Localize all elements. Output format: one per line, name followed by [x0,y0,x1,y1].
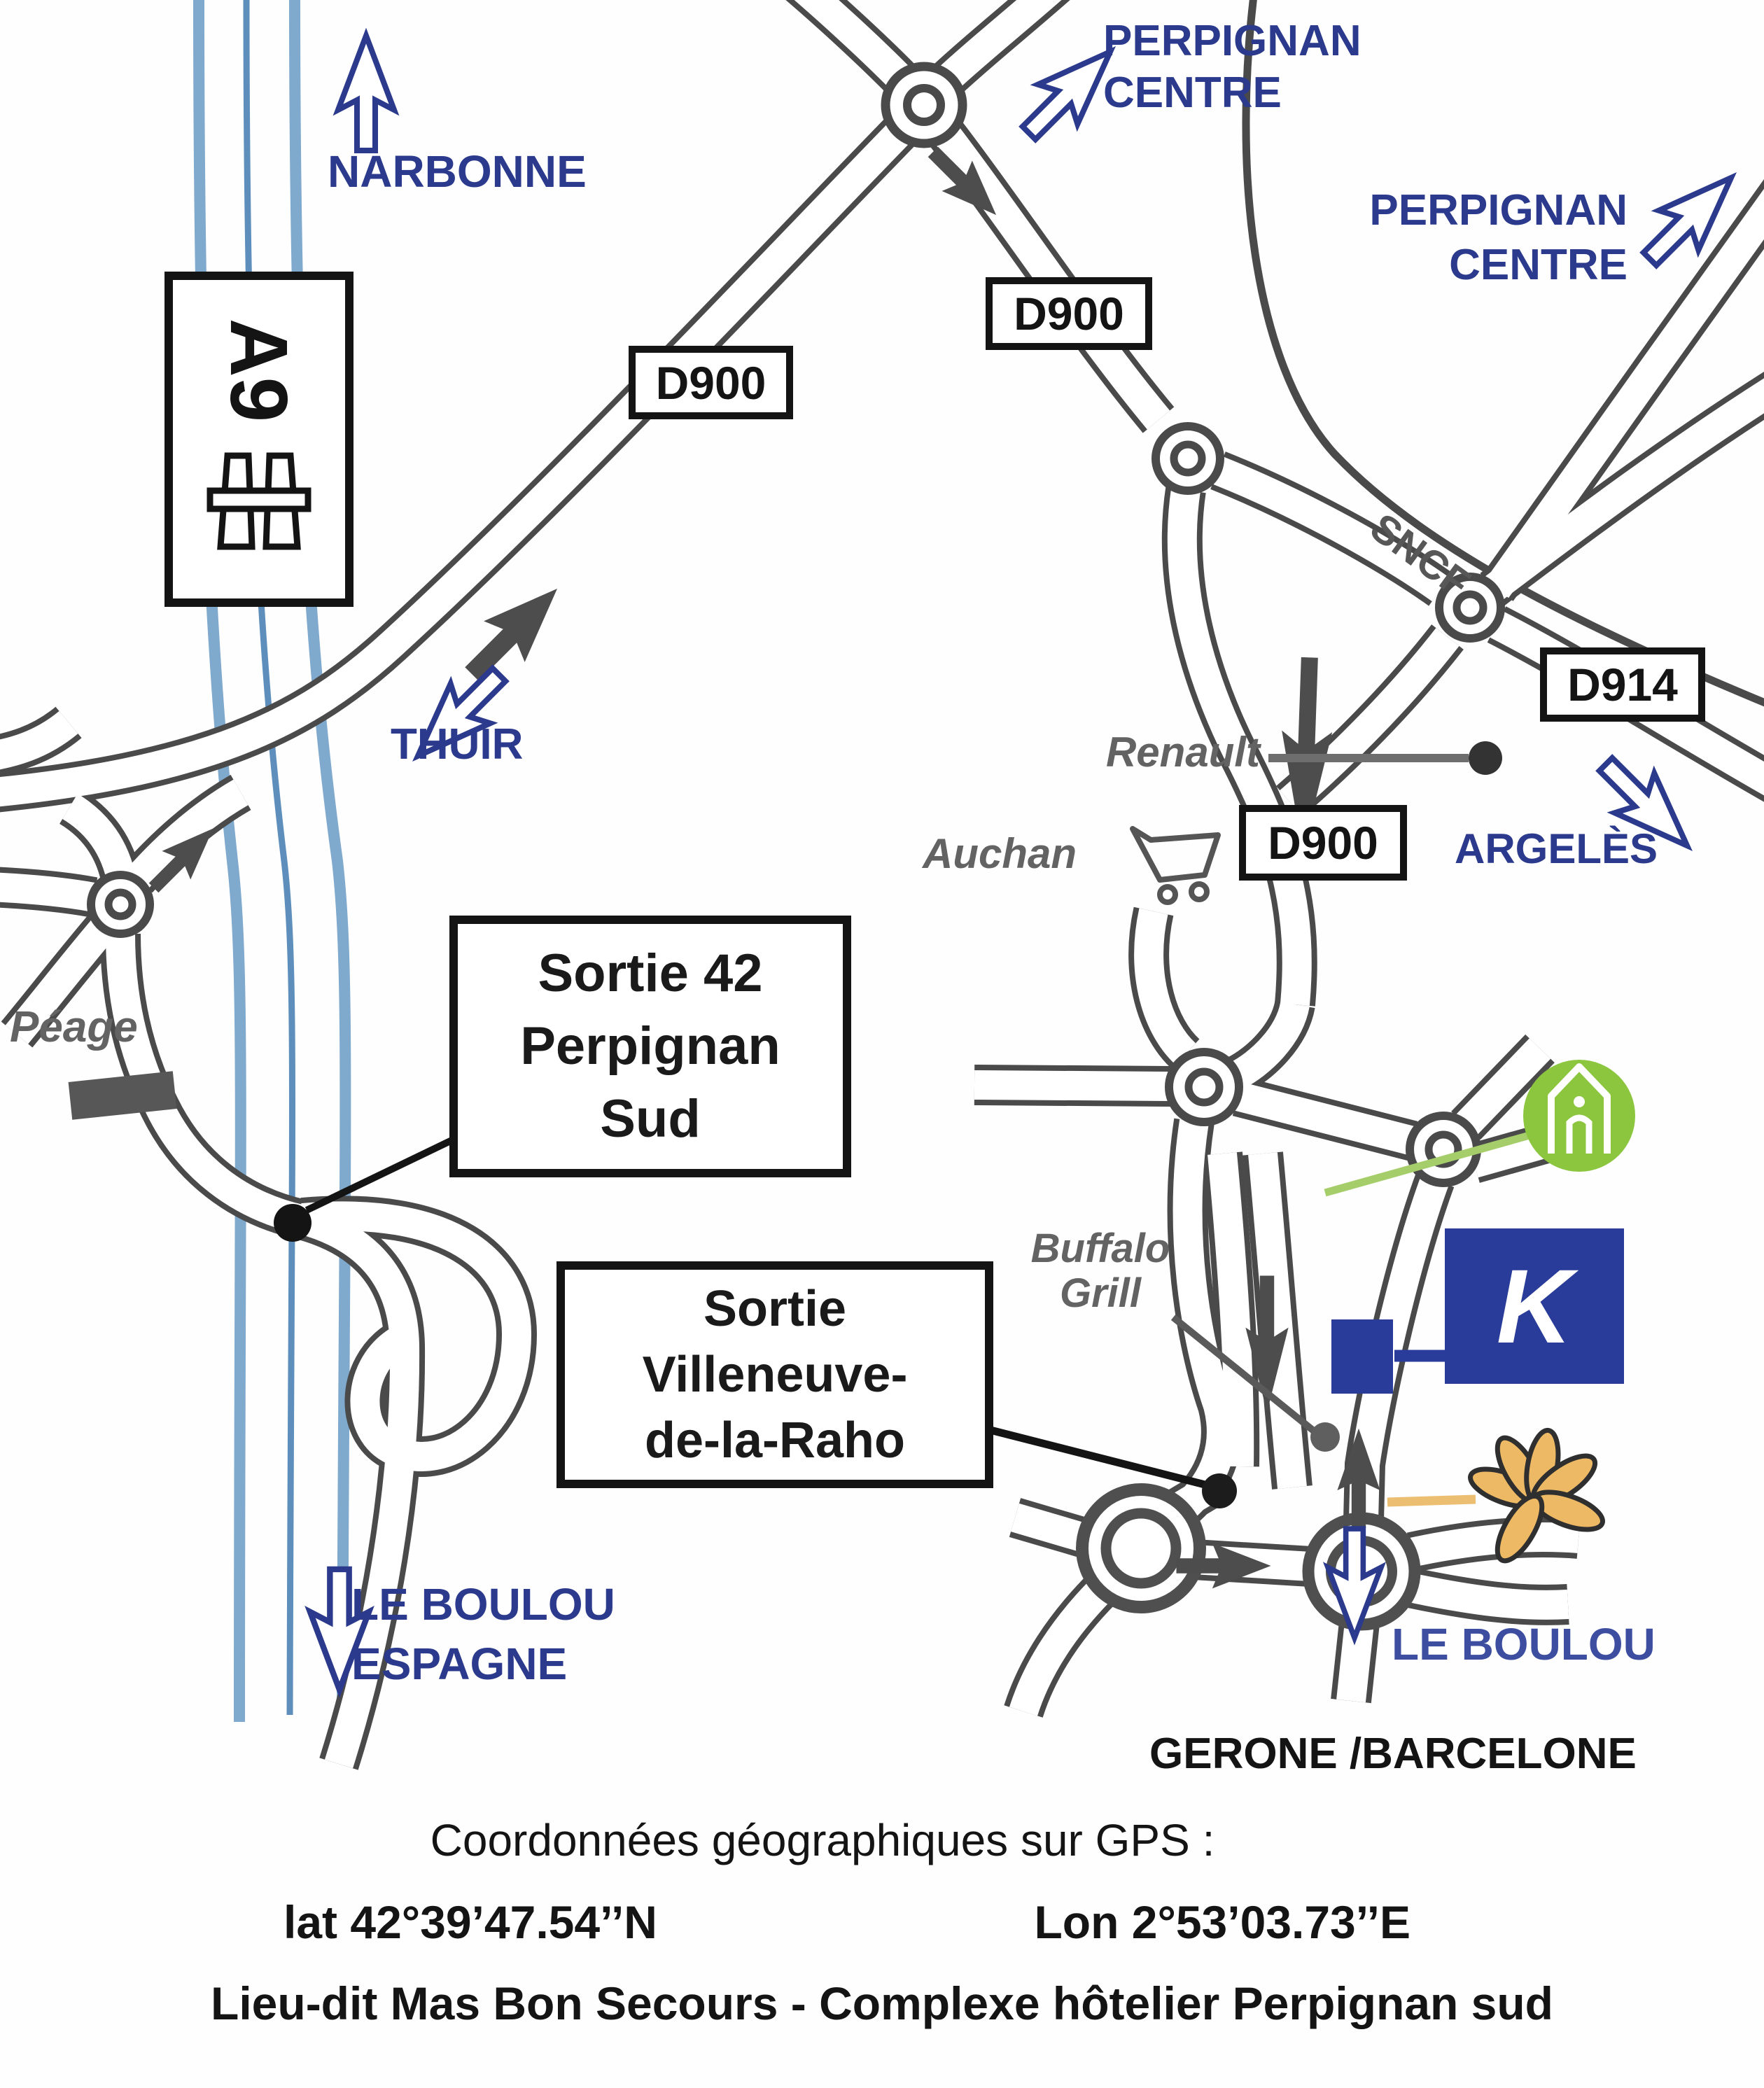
label-argeles: ARGELÈS [1455,825,1658,873]
label-perpignan-centre-2: PERPIGNAN CENTRE [1277,183,1627,293]
villeneuve-line2: Villeneuve- [565,1342,985,1408]
shopping-cart-icon [1133,829,1218,902]
label-le-boulou-left: LE BOULOU [351,1578,615,1630]
d900-label: D900 [656,356,766,409]
d900-label: D900 [1014,287,1124,340]
label-narbonne: NARBONNE [328,146,587,197]
buffalo-grill-dot [1310,1422,1340,1452]
d900-label: D900 [1268,816,1378,869]
label-buffalo-grill: Buffalo Grill [1011,1226,1190,1316]
label-thuir: THUIR [391,720,523,769]
villeneuve-line1: Sortie [565,1276,985,1342]
buffalo-line1: Buffalo [1011,1226,1190,1271]
d900-sign-west: D900 [629,346,793,419]
sortie-villeneuve-callout: Sortie Villeneuve- de-la-Raho [556,1261,993,1488]
label-renault: Renault [1057,728,1260,776]
gps-longitude: Lon 2°53’03.73’’E [1034,1896,1410,1949]
access-map: A9 D900 D900 D900 D914 Sortie 42 Perpign… [0,0,1764,2088]
perpignan-2-line1: PERPIGNAN [1277,183,1627,238]
label-gerone-barcelone: GERONE /BARCELONE [1149,1729,1637,1779]
label-perpignan-centre-1: PERPIGNAN CENTRE [1103,15,1361,119]
sortie42-line1: Sortie 42 [458,937,843,1010]
address-line: Lieu-dit Mas Bon Secours - Complexe hôte… [0,1977,1764,2030]
perpignan-1-line2: CENTRE [1103,67,1361,119]
green-house-hotel-icon [1523,1060,1635,1172]
sortie-42-callout: Sortie 42 Perpignan Sud [449,916,851,1177]
sortie42-line2: Perpignan [458,1010,843,1083]
sortie42-location-dot [274,1204,311,1242]
sortie42-line3: Sud [458,1083,843,1156]
d900-sign-north: D900 [986,277,1152,350]
k-letter: K [1497,1246,1572,1367]
gps-latitude: lat 42°39’47.54’’N [283,1896,657,1949]
buffalo-line2: Grill [1011,1271,1190,1316]
label-le-boulou-right: LE BOULOU [1392,1618,1655,1670]
gps-heading: Coordonnées géographiques sur GPS : [0,1814,1645,1866]
d914-label: D914 [1567,658,1678,711]
label-auchan: Auchan [923,829,1077,878]
renault-dot [1469,741,1502,775]
d914-sign: D914 [1540,647,1705,722]
perpignan-1-line1: PERPIGNAN [1103,15,1361,67]
label-espagne: ESPAGNE [351,1638,567,1690]
a9-motorway-lines [199,0,345,1722]
k-hotel-logo: K [1445,1228,1624,1384]
perpignan-2-line2: CENTRE [1277,238,1627,293]
d900-sign-south: D900 [1239,805,1407,881]
k-hotel-small-square [1331,1319,1393,1394]
villeneuve-line3: de-la-Raho [565,1408,985,1473]
arrow-up-narbonne [338,36,394,150]
orange-flower-leader [1387,1499,1476,1502]
a9-sign-label: A9 [212,318,306,421]
villeneuve-location-dot [1202,1473,1237,1508]
a9-motorway-sign: A9 [164,272,353,607]
motorway-bridge-icon [206,442,311,561]
gps-coordinates: lat 42°39’47.54’’N Lon 2°53’03.73’’E [283,1896,1410,1949]
label-peage: Péage [10,1002,138,1052]
